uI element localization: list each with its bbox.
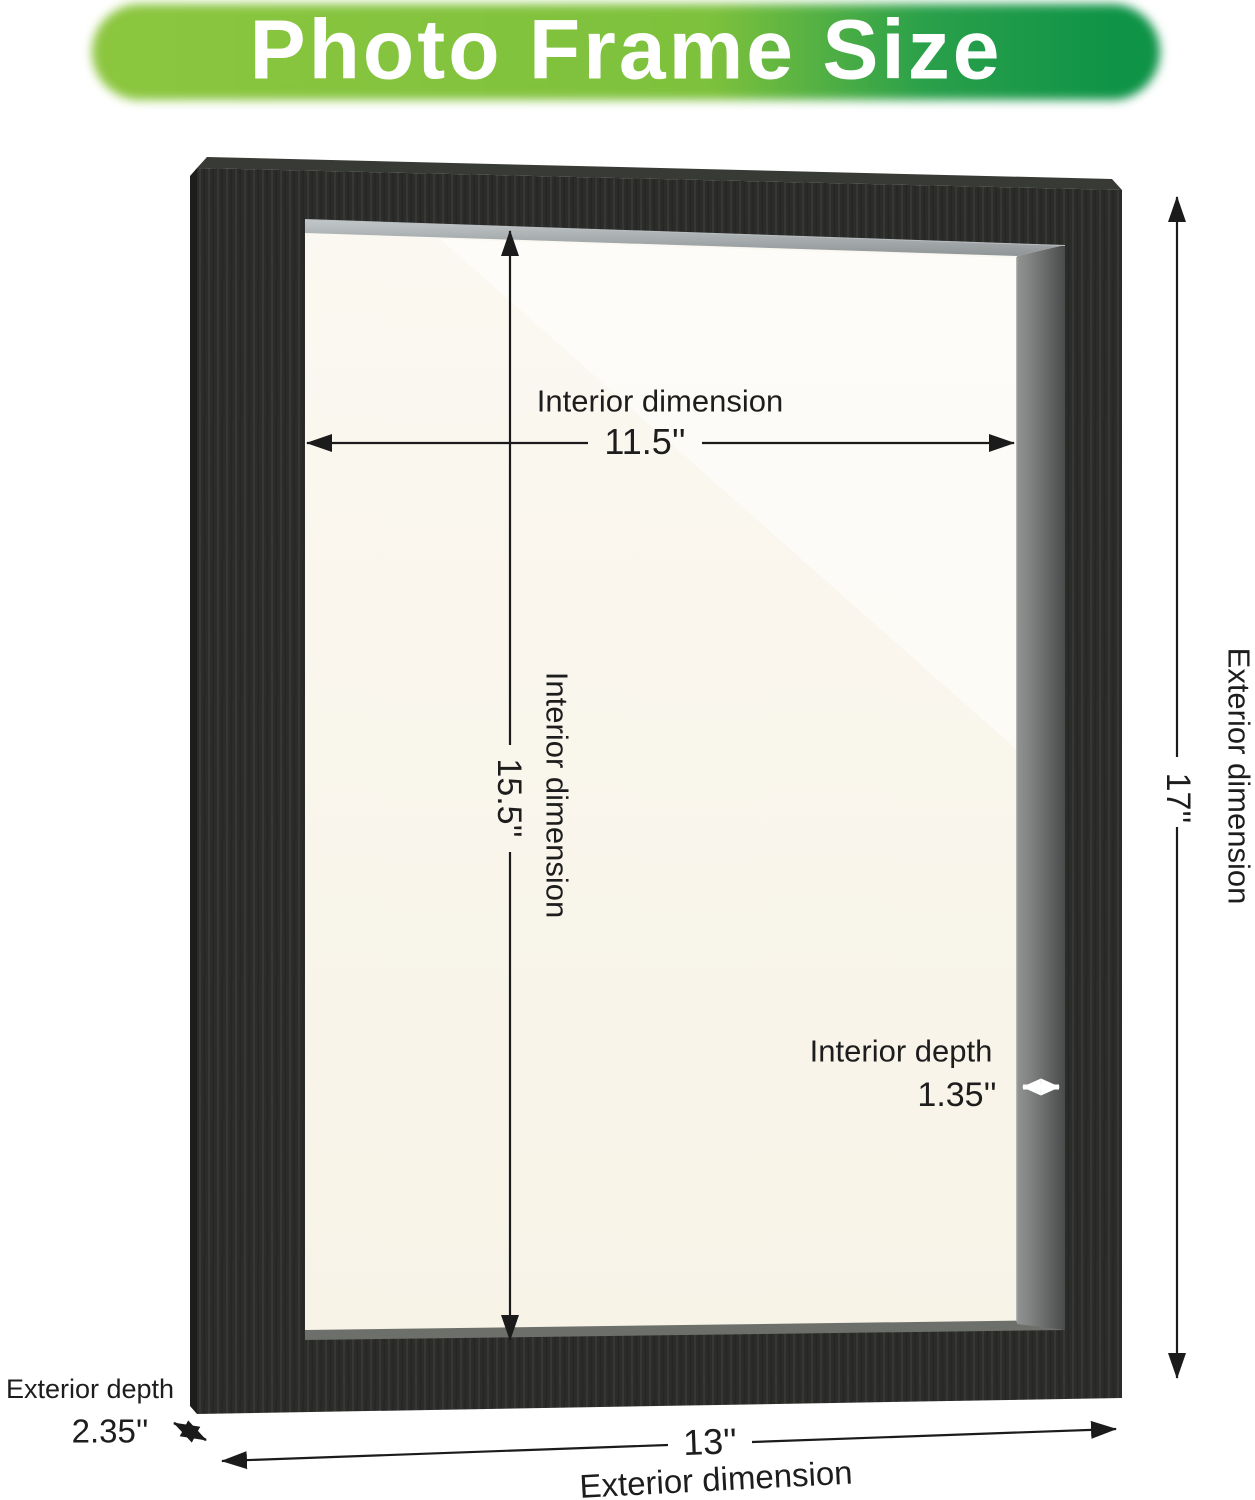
exterior-width-arrow-right <box>752 1429 1116 1442</box>
exterior-width-arrow-left <box>222 1445 668 1461</box>
exterior-depth-arrow <box>174 1423 206 1440</box>
exterior-depth-value: 2.35'' <box>72 1415 149 1450</box>
frame-diagram: Interior dimension 11.5'' Interior dimen… <box>0 0 1255 1500</box>
interior-depth-label: Interior depth <box>810 1036 993 1069</box>
exterior-height-label: Exterior dimension <box>1222 648 1255 905</box>
exterior-width-value: 13'' <box>682 1422 737 1462</box>
interior-width-value: 11.5'' <box>604 423 685 461</box>
frame-interior-right-wall <box>1017 245 1065 1330</box>
frame-illustration-svg <box>0 0 1255 1500</box>
interior-height-value: 15.5'' <box>490 758 526 837</box>
interior-width-label: Interior dimension <box>537 386 783 419</box>
exterior-depth-label: Exterior depth <box>6 1375 174 1403</box>
photo-frame-size-infographic: Photo Frame Size <box>0 0 1255 1500</box>
frame-left-face <box>190 168 197 1414</box>
interior-height-label: Interior dimension <box>540 672 573 918</box>
exterior-height-value: 17'' <box>1159 773 1195 824</box>
interior-depth-value: 1.35'' <box>917 1078 996 1114</box>
shadow-box-frame <box>190 157 1122 1414</box>
